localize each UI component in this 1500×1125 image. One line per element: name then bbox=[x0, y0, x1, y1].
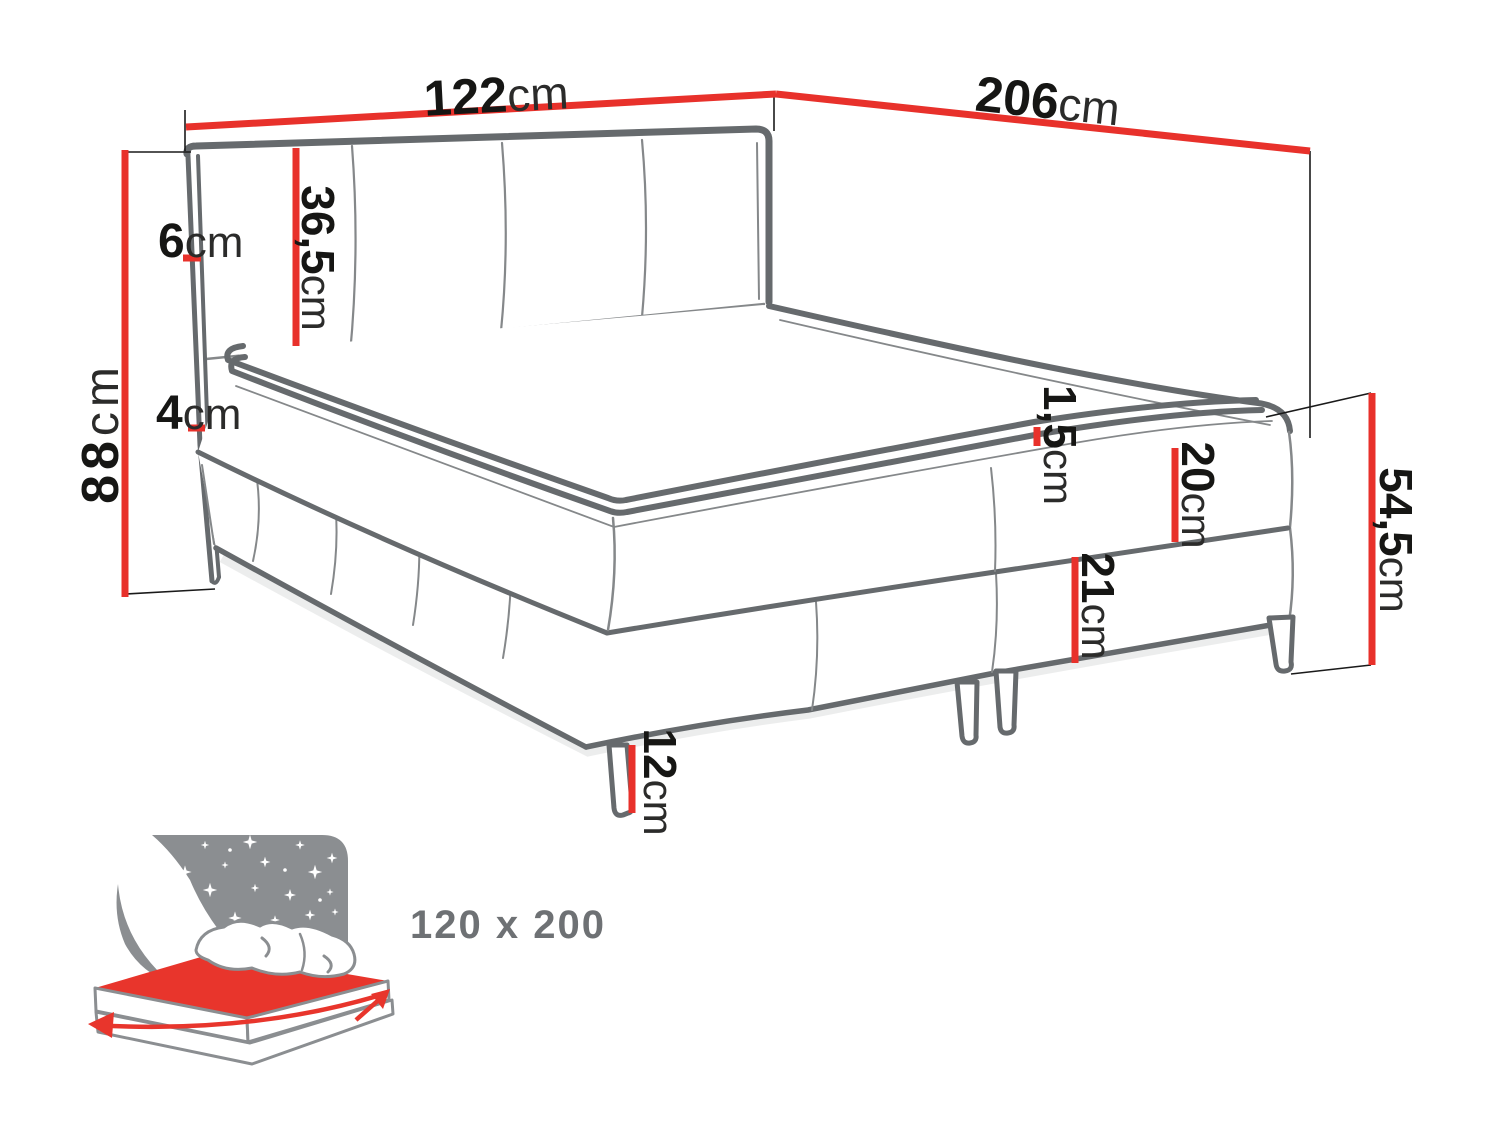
dim-label-length: 206cm bbox=[973, 66, 1123, 137]
leg-right bbox=[1269, 617, 1293, 671]
dim-label-mattress-height: 20cm bbox=[1172, 441, 1224, 548]
bed-drawing bbox=[187, 129, 1293, 815]
dim-label-topper-seam: 1,5cm bbox=[1034, 385, 1086, 505]
dim-label-leg-height: 12cm bbox=[634, 728, 686, 835]
star-dot bbox=[318, 898, 322, 902]
star-dot bbox=[283, 868, 287, 872]
dim-label-total-height: 88cm bbox=[72, 362, 130, 504]
dim-label-frame-bottom: 4cm bbox=[156, 387, 241, 440]
dim-label-width: 122cm bbox=[422, 63, 569, 126]
ext-88-bottom bbox=[126, 589, 215, 594]
size-label: 120 x 200 bbox=[410, 903, 606, 947]
star-dot bbox=[198, 903, 202, 907]
leg-middle-2 bbox=[996, 671, 1016, 733]
ext-545-top bbox=[1266, 393, 1371, 417]
star-dot bbox=[163, 850, 167, 854]
ext-545-bottom bbox=[1291, 665, 1371, 674]
dim-label-panel-height: 36,5cm bbox=[292, 185, 344, 331]
dim-label-side-height: 54,5cm bbox=[1370, 467, 1422, 613]
bed-size-icon bbox=[88, 834, 393, 1064]
star-icon bbox=[151, 921, 159, 929]
bed-dimension-diagram: 122cm 206cm 88cm 36,5cm 6cm 4cm 1,5cm 20… bbox=[0, 0, 1500, 1125]
star-dot bbox=[178, 930, 182, 934]
mattress-right-corner-edge bbox=[1289, 432, 1292, 527]
base-right-corner-edge bbox=[1289, 528, 1293, 622]
star-dot bbox=[138, 913, 142, 917]
star-dot bbox=[228, 848, 232, 852]
star-icon bbox=[129, 894, 141, 906]
dim-label-frame-top: 6cm bbox=[158, 215, 243, 268]
diagram-canvas: 122cm 206cm 88cm 36,5cm 6cm 4cm 1,5cm 20… bbox=[0, 0, 1500, 1125]
dim-label-base-height: 21cm bbox=[1072, 552, 1124, 659]
leg-middle-1 bbox=[957, 682, 977, 743]
